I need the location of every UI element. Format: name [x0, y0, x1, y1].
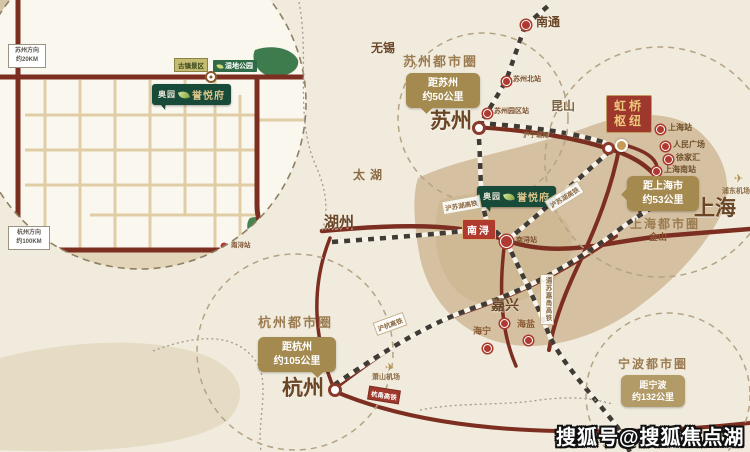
inset-spot-green-label: 湿地公园 [213, 60, 257, 72]
distance-callout-shanghai: 距上海市 约53公里 [627, 176, 699, 211]
callout-line2: 约53公里 [631, 194, 695, 208]
hongqiao-station-ring [602, 142, 615, 155]
map-canvas: 苏州都市圈 上海都市圈 杭州都市圈 宁波都市圈 无锡 南通 苏州 昆山 上海 湖… [0, 0, 750, 452]
city-label-nantong: 南通 [536, 16, 560, 29]
region-label-ningbo: 宁波都市圈 [618, 358, 688, 371]
watermark-text: 搜狐号@搜狐焦点湖州站 [556, 421, 750, 452]
town-label-jinshan: 金山 [649, 233, 667, 243]
inset-poi-dot [278, 235, 284, 241]
shanghai-station-dot-3 [652, 167, 661, 176]
leaf-icon [178, 89, 190, 100]
hangzhou-station-ring [328, 383, 342, 397]
suzhou-north-dot [502, 77, 511, 86]
inset-road-box-line1: 苏州方向 [11, 47, 43, 56]
lake-label-taihu: 太湖 [353, 169, 387, 182]
leaf-icon [503, 191, 515, 202]
region-label-shanghai: 上海都市圈 [630, 218, 700, 231]
region-label-hangzhou: 杭州都市圈 [258, 316, 333, 330]
town-box-nanxun: 南浔 [462, 219, 496, 240]
nanxun-station-label: 南浔站 [516, 237, 537, 245]
inset-spot-gold-label: 古镇景区 [174, 58, 208, 72]
inset-park-south [247, 217, 280, 241]
city-label-kunshan: 昆山 [551, 100, 575, 113]
inset-road-box-top: 苏州方向 约20KM [8, 44, 46, 68]
project-name: 誉悦府 [192, 87, 225, 102]
callout-line1: 距杭州 [262, 341, 332, 355]
callout-line1: 距上海市 [631, 180, 695, 194]
haiyan-dot [524, 336, 533, 345]
suzhou-park-label: 苏州园区站 [494, 108, 529, 116]
callout-line2: 约132公里 [625, 391, 681, 403]
xiaoshan-airport-icon: ✈ [385, 361, 394, 374]
shanghai-station-label-0: 上海站 [668, 124, 692, 133]
city-label-huzhou: 湖州 [324, 215, 354, 232]
inset-project-logo-badge: 奥园 誉悦府 [152, 84, 231, 105]
rail-label-huning: 沪宁城际 [521, 128, 551, 140]
leaf-icon [216, 63, 223, 70]
inset-road-box-line2: 约100KM [11, 238, 47, 247]
city-label-hangzhou: 杭州 [282, 377, 324, 400]
shanghai-station-dot-2 [664, 155, 673, 164]
hongqiao-hub-badge: 虹桥 枢纽 [606, 95, 652, 133]
town-label-haiyan: 海盐 [517, 320, 535, 330]
inset-road-box-line2: 约20KM [11, 56, 43, 65]
city-label-shanghai: 上海 [694, 197, 736, 220]
jiaxing-dot [500, 319, 509, 328]
hongqiao-node [615, 139, 628, 152]
distance-callout-hangzhou: 距杭州 约105公里 [258, 337, 336, 372]
nanxun-station-dot [500, 235, 513, 248]
callout-line1: 距苏州 [410, 77, 476, 91]
city-label-suzhou: 苏州 [430, 110, 472, 133]
project-logo-badge: 奥园 誉悦府 [477, 186, 556, 207]
pudong-airport-icon: ✈ [734, 172, 743, 185]
inset-spot-green-text: 湿地公园 [225, 61, 253, 71]
shanghai-station-label-3: 上海南站 [664, 166, 696, 175]
shanghai-station-dot-1 [661, 142, 670, 151]
city-label-wuxi: 无锡 [371, 42, 395, 55]
distance-callout-ningbo: 距宁波 约132公里 [621, 375, 685, 407]
region-label-suzhou: 苏州都市圈 [403, 55, 478, 69]
city-label-jiaxing: 嘉兴 [491, 299, 519, 314]
suzhou-station-ring [472, 121, 486, 135]
inset-road-box-line1: 杭州方向 [11, 229, 47, 238]
callout-line2: 约50公里 [410, 91, 476, 105]
shanghai-station-label-1: 人民广场 [673, 141, 705, 150]
inset-interchange-dot [210, 76, 213, 79]
callout-line2: 约105公里 [262, 355, 332, 369]
callout-line1: 距宁波 [625, 379, 681, 391]
hub-line1: 虹桥 [611, 99, 647, 114]
distance-callout-suzhou: 距苏州 约50公里 [406, 73, 480, 108]
xiaoshan-airport-label: 萧山机场 [372, 374, 400, 382]
haining-dot [483, 344, 492, 353]
town-label-haining: 海宁 [473, 327, 491, 337]
inset-poi-label: 南浔站 [231, 242, 251, 249]
shanghai-station-label-2: 徐家汇 [676, 154, 700, 163]
suzhou-north-label: 苏州北站 [513, 76, 541, 84]
inset-road-box-bottom: 杭州方向 约100KM [8, 226, 50, 250]
suzhou-park-dot [483, 109, 492, 118]
hub-line2: 枢纽 [611, 114, 647, 129]
rail-label-tongsujiayong: 通苏嘉甬高铁 [540, 274, 554, 325]
pudong-airport-label: 浦东机场 [722, 188, 750, 196]
shanghai-station-dot-0 [656, 125, 665, 134]
nantong-dot [521, 20, 531, 30]
